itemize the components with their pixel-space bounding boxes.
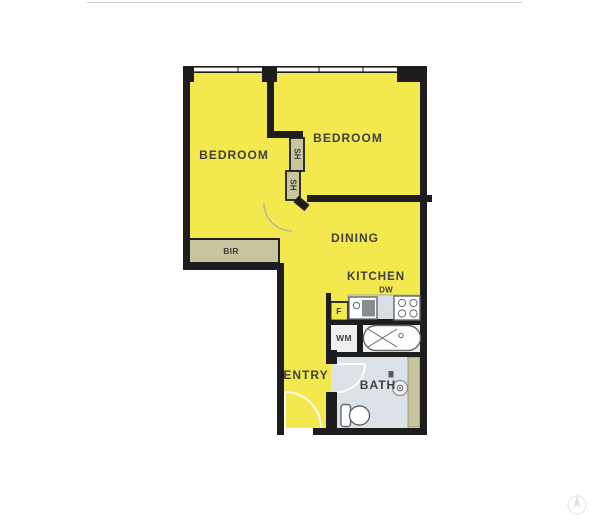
bedroom-1-label: BEDROOM <box>199 148 269 162</box>
wall-bottom-corner <box>277 428 284 435</box>
washing-machine-label: WM <box>336 333 352 343</box>
window-pier-right <box>397 66 427 82</box>
wall-laundry-divider <box>357 325 363 354</box>
bath-tap <box>389 371 394 378</box>
wall-under-tub <box>326 352 420 357</box>
window-pier-middle <box>262 66 277 82</box>
window-bedroom2 <box>274 67 398 73</box>
bath-vanity-bench <box>408 357 420 427</box>
window-bedroom1 <box>190 67 267 73</box>
kitchen-label: KITCHEN <box>347 271 405 283</box>
wall-divider-jog <box>267 131 303 138</box>
wall-bath-door-top <box>326 350 337 364</box>
floor-plan-page: BEDROOM BEDROOM DINING KITCHEN ENTRY BAT… <box>0 0 600 522</box>
dishwasher-label: DW <box>379 286 393 295</box>
dining-label: DINING <box>331 231 379 245</box>
wall-left-upper <box>183 66 190 270</box>
wall-bedroom1-bottom <box>183 263 284 270</box>
shelf-1-label: SH <box>293 148 302 160</box>
wall-right <box>420 66 427 435</box>
kitchen-sink <box>349 297 377 319</box>
fridge-label: F <box>336 306 342 316</box>
bedroom-2-label: BEDROOM <box>313 131 383 145</box>
wall-corridor-left <box>277 263 284 435</box>
window-pier-left <box>183 66 194 82</box>
entry-label: ENTRY <box>283 368 328 382</box>
wall-bath-door-bottom <box>326 392 337 435</box>
bathtub <box>364 326 421 351</box>
toilet <box>341 405 370 427</box>
bir-label: BIR <box>223 246 239 256</box>
floor-plan-drawing <box>0 0 600 522</box>
bath-label: BATH <box>360 378 396 392</box>
shelf-2-label: SH <box>289 179 298 191</box>
compass-icon <box>568 495 586 514</box>
wall-bedroom2-bottom <box>307 195 432 202</box>
cooktop <box>394 296 420 320</box>
